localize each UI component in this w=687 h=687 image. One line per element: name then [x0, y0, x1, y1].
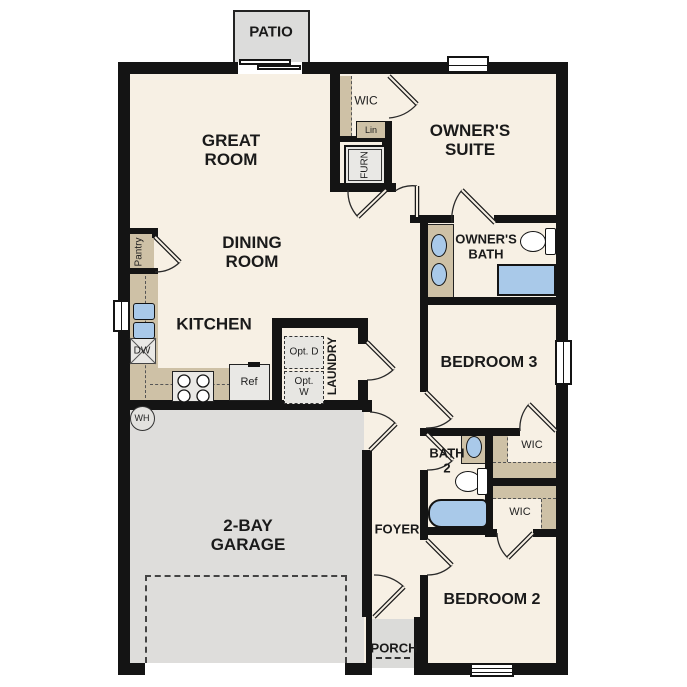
- door-swing-layer: [0, 0, 687, 687]
- label-wic-bed3: WIC: [521, 439, 542, 451]
- room-label-owners-suite: OWNER'S SUITE: [410, 121, 530, 159]
- room-label-laundry: LAUNDRY: [325, 337, 339, 395]
- room-label-bath2: BATH 2: [425, 446, 469, 475]
- label-linen: Lin: [365, 125, 377, 135]
- room-label-porch: PORCH: [371, 642, 418, 657]
- door-arc: [155, 104, 529, 587]
- label-refrigerator: Ref: [240, 376, 257, 388]
- room-label-great-room: GREAT ROOM: [176, 131, 286, 169]
- room-label-patio: PATIO: [249, 25, 293, 42]
- room-label-bedroom2: BEDROOM 2: [412, 591, 572, 609]
- room-label-foyer: FOYER: [375, 523, 420, 538]
- label-wic-bed2: WIC: [509, 506, 530, 518]
- label-owner-wic: WIC: [354, 94, 377, 107]
- label-opt-washer: Opt. W: [289, 376, 319, 398]
- room-label-garage: 2-BAY GARAGE: [193, 516, 303, 554]
- room-label-dining-room: DINING ROOM: [207, 233, 297, 271]
- room-label-bedroom3: BEDROOM 3: [409, 354, 569, 372]
- room-label-owners-bath: OWNER'S BATH: [446, 232, 526, 261]
- room-label-kitchen: KITCHEN: [134, 314, 294, 333]
- label-opt-dryer: Opt. D: [289, 346, 319, 357]
- label-furnace: FURN: [360, 151, 371, 179]
- label-dishwasher: DW: [134, 345, 151, 356]
- label-pantry: Pantry: [134, 238, 145, 267]
- label-water-heater: WH: [135, 413, 150, 423]
- floor-plan: PATIO GREAT ROOM WIC Lin FURN OWNER'S SU…: [0, 0, 687, 687]
- stove-burners-icon: [178, 375, 209, 402]
